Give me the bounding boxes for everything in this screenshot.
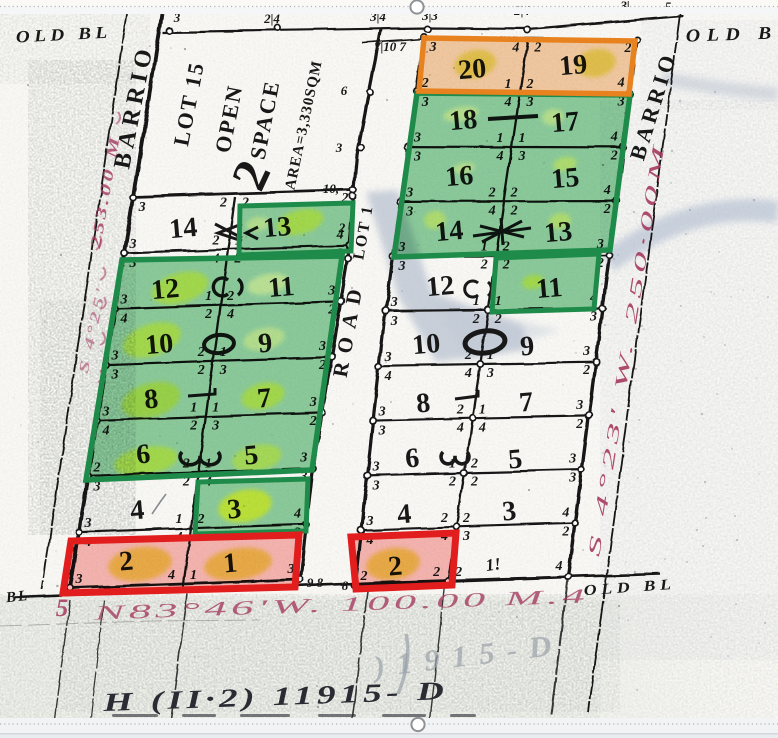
svg-text:3: 3 [366, 514, 374, 529]
svg-text:3: 3 [335, 140, 343, 155]
svg-text:9: 9 [519, 330, 536, 362]
svg-text:3: 3 [575, 398, 583, 413]
svg-text:2: 2 [470, 457, 478, 472]
svg-text:2: 2 [440, 511, 448, 526]
svg-text:3: 3 [372, 459, 380, 474]
svg-text:3: 3 [568, 471, 576, 486]
svg-text:OLD B: OLD B [685, 22, 778, 45]
svg-text:2: 2 [480, 258, 488, 273]
svg-text:4: 4 [396, 498, 413, 530]
svg-text:2: 2 [575, 417, 583, 432]
svg-text:3: 3 [384, 350, 392, 365]
svg-text:3: 3 [129, 237, 137, 252]
svg-text:BL: BL [4, 588, 30, 606]
svg-text:9 8: 9 8 [307, 575, 324, 590]
svg-text:4: 4 [464, 366, 472, 381]
svg-text:4: 4 [384, 369, 392, 384]
svg-text:2: 2 [219, 196, 227, 211]
svg-text:2: 2 [470, 475, 478, 490]
svg-text:4: 4 [129, 494, 146, 526]
svg-text:3: 3 [378, 405, 386, 420]
svg-text:2: 2 [448, 475, 456, 490]
svg-text:2: 2 [462, 511, 470, 526]
svg-text:3: 3 [372, 478, 380, 493]
svg-text:7: 7 [518, 386, 535, 418]
svg-text:3: 3 [390, 295, 398, 310]
svg-text:14: 14 [168, 212, 199, 245]
svg-text:4: 4 [478, 420, 486, 435]
svg-text:3: 3 [568, 452, 576, 467]
svg-text:3: 3 [398, 259, 406, 274]
svg-text:3: 3 [582, 344, 590, 359]
svg-text:2: 2 [472, 312, 480, 327]
svg-text:4: 4 [555, 559, 563, 574]
svg-text:6: 6 [341, 83, 348, 98]
svg-text:7|10 7: 7|10 7 [374, 39, 407, 54]
svg-text:2: 2 [456, 402, 464, 417]
svg-text:3: 3 [462, 529, 470, 544]
svg-text:3: 3 [138, 200, 146, 215]
svg-text:5: 5 [56, 595, 69, 622]
svg-text:10: 10 [411, 328, 442, 361]
svg-text:6: 6 [404, 442, 421, 474]
svg-text:1: 1 [479, 402, 486, 417]
svg-text:3: 3 [589, 310, 597, 325]
svg-text:8: 8 [342, 578, 349, 593]
svg-text:1: 1 [175, 512, 182, 527]
svg-text:3: 3 [378, 424, 386, 439]
svg-text:3: 3 [390, 314, 398, 329]
svg-text:3: 3 [501, 495, 518, 527]
svg-text:2: 2 [582, 363, 590, 378]
svg-text:4: 4 [456, 420, 464, 435]
svg-text:3: 3 [486, 366, 494, 381]
svg-text:2: 2 [212, 233, 220, 248]
svg-text:12: 12 [425, 270, 456, 303]
svg-text:4: 4 [561, 505, 569, 520]
svg-text:10,: 10, [323, 181, 339, 196]
svg-text:3: 3 [84, 516, 92, 531]
svg-text:8: 8 [415, 387, 432, 419]
svg-text:5: 5 [507, 443, 524, 475]
svg-text:2: 2 [561, 524, 569, 539]
svg-text:1!: 1! [484, 554, 502, 575]
